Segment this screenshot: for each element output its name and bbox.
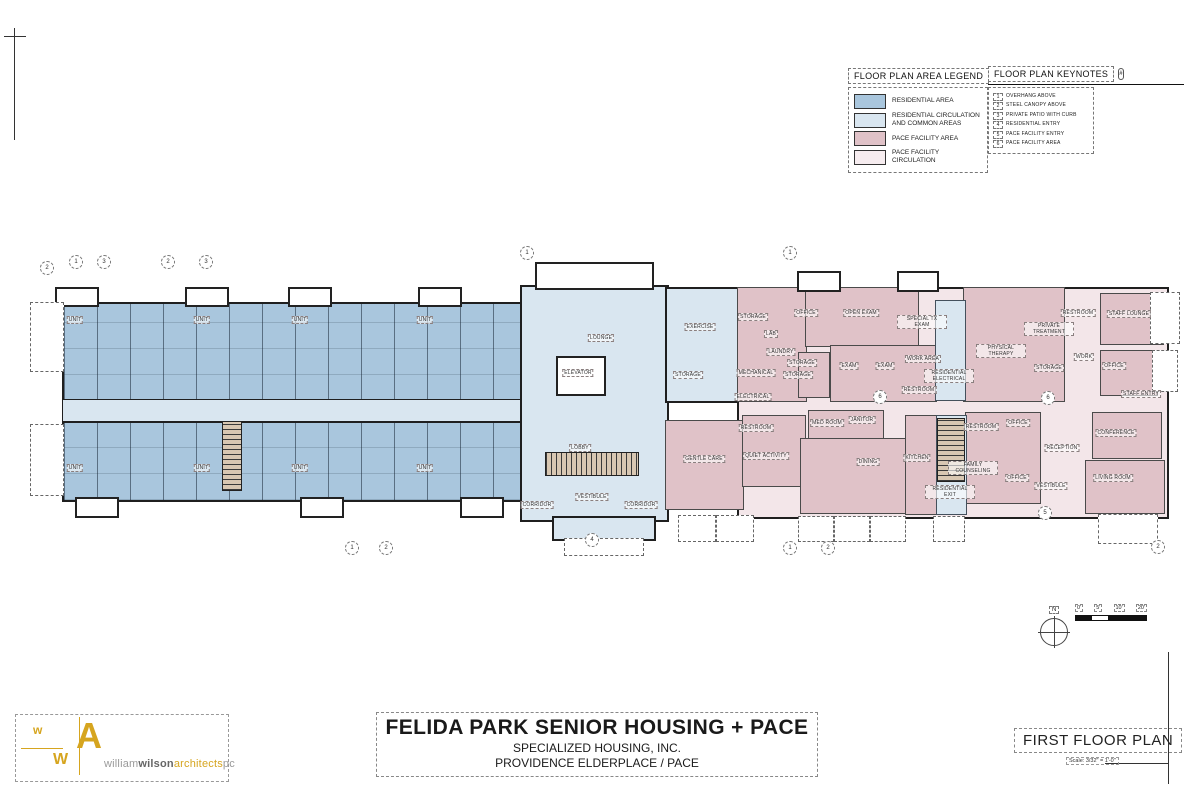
title-block: FELIDA PARK SENIOR HOUSING + PACE SPECIA… (376, 712, 818, 777)
room-label: UNIT (417, 316, 433, 324)
room-label: KITCHEN (903, 454, 930, 462)
keynote-marker: 6 (1041, 391, 1055, 405)
room-label: LOUNGE (588, 334, 614, 342)
room-label: UNIT (194, 316, 210, 324)
keynote-marker: 5 (1038, 506, 1052, 520)
north-label: N (1049, 606, 1059, 614)
room-label: FAMILY COUNSELING (948, 461, 998, 475)
room-label: PRIVATE TREATMENT (1024, 322, 1074, 336)
logo-word-pc: pc (223, 758, 235, 770)
graphic-scale: 0'5'10'20' (1075, 604, 1147, 621)
room-label: CONFERENCE (1095, 429, 1136, 437)
room-label: EXAM (840, 362, 859, 370)
keynote-marker: 1 (783, 541, 797, 555)
room-label: VESTIBULE (1034, 482, 1067, 490)
scalebar-tick: 10' (1114, 604, 1125, 612)
room-label: UNIT (292, 316, 308, 324)
room-label: SPECIAL TX EXAM (897, 315, 947, 329)
scalebar-labels: 0'5'10'20' (1075, 604, 1147, 612)
scalebar-tick: 20' (1136, 604, 1147, 612)
room-label: EXERCISE (685, 323, 716, 331)
scalebar-segment (1076, 616, 1092, 620)
sheet-title: FIRST FLOOR PLAN (1014, 728, 1182, 753)
room-label: UNIT (292, 464, 308, 472)
logo-word-william: william (104, 758, 138, 770)
room-label: STORAGE (783, 371, 813, 379)
keynote-marker: 2 (1151, 540, 1165, 554)
room-label: LAB (764, 330, 778, 338)
floor-plan: LOUNGEELEVATORLOBBYVESTIBULECORRIDORCORR… (0, 0, 1187, 794)
logo-wordmark: williamwilsonarchitectspc (104, 758, 235, 770)
project-subtitle: PROVIDENCE ELDERPLACE / PACE (377, 756, 817, 770)
room-label: MED ROOM (810, 419, 844, 427)
room-label: WORK (1074, 353, 1094, 361)
logo-grid-line (21, 748, 63, 749)
scalebar-tick: 0' (1075, 604, 1083, 612)
scalebar-segment (1092, 616, 1108, 620)
keynote-marker: 3 (97, 255, 111, 269)
keynote-marker: 1 (783, 246, 797, 260)
room-label: ELECTRICAL (735, 393, 772, 401)
room-label: MECHANICAL (737, 369, 776, 377)
keynote-marker: 6 (873, 390, 887, 404)
room-label: GENTLE CARE (683, 455, 725, 463)
scalebar-bar (1075, 615, 1147, 621)
keynote-marker: 2 (40, 261, 54, 275)
keynote-marker: 2 (161, 255, 175, 269)
room-label: OPEN EXAM (843, 309, 879, 317)
room-label: PHYSICAL THERAPY (976, 344, 1026, 358)
room-label: STORAGE (738, 313, 768, 321)
logo-word-wilson: wilson (138, 758, 173, 770)
room-label: STORAGE (673, 371, 703, 379)
room-label: LAUNDRY (766, 348, 795, 356)
room-label: STAFF ENTRY (1121, 390, 1161, 398)
room-label: RESIDENTIAL EXIT (925, 485, 975, 499)
room-label: OFFICE (1102, 362, 1126, 370)
room-label: CORRIDOR (521, 501, 554, 509)
room-label: UNIT (194, 464, 210, 472)
room-label: DINING (857, 458, 880, 466)
room-label: UNIT (67, 316, 83, 324)
keynote-marker: 1 (69, 255, 83, 269)
keynote-marker: 2 (379, 541, 393, 555)
room-label: OFFICE (1005, 474, 1029, 482)
north-arrow: N (1040, 598, 1068, 646)
room-label: LOBBY (569, 444, 591, 452)
scalebar-tick: 5' (1094, 604, 1102, 612)
room-label: UNIT (417, 464, 433, 472)
room-label: OFFICE (794, 309, 818, 317)
room-label: QUIET ACTIVITY (743, 452, 789, 460)
room-label: STORAGE (1034, 364, 1064, 372)
logo-mark-w-large: W (53, 751, 68, 769)
room-label: RESTROOM (1061, 309, 1096, 317)
architect-logo: w A W williamwilsonarchitectspc (15, 714, 229, 782)
room-label: VESTIBULE (575, 493, 608, 501)
room-label: STAFF LOUNGE (1107, 310, 1151, 318)
room-label: RESTROOM (902, 386, 937, 394)
scalebar-segment (1108, 616, 1146, 620)
room-label: WORK AREA (905, 355, 941, 363)
keynote-marker: 1 (520, 246, 534, 260)
room-label: OFFICE (1006, 419, 1030, 427)
keynote-marker: 2 (821, 541, 835, 555)
north-arrow-icon (1040, 618, 1068, 646)
room-label: RECEPTION (1045, 444, 1080, 452)
logo-mark-w-small: w (33, 723, 42, 737)
room-label: LIVING ROOM (1093, 474, 1133, 482)
keynote-marker: 1 (345, 541, 359, 555)
room-label: STORAGE (787, 359, 817, 367)
logo-mark-a: A (76, 715, 102, 757)
keynote-marker: 4 (585, 533, 599, 547)
room-label: ELEVATOR (562, 369, 593, 377)
keynote-marker: 3 (199, 255, 213, 269)
room-label-layer: LOUNGEELEVATORLOBBYVESTIBULECORRIDORCORR… (0, 0, 1187, 794)
sheet-name-block: FIRST FLOOR PLAN (1014, 728, 1182, 753)
room-label: CORRIDOR (625, 501, 658, 509)
logo-word-architects: architects (174, 758, 223, 770)
room-label: RESIDENTIAL ELECTRICAL (924, 369, 974, 383)
room-label: RESTROOM (964, 423, 999, 431)
room-label: UNIT (67, 464, 83, 472)
room-label: EXAM (876, 362, 895, 370)
client-name: SPECIALIZED HOUSING, INC. (377, 741, 817, 755)
sheet-scale: Scale: 3/32" = 1'-0" (1066, 757, 1119, 765)
room-label: RESTROOM (739, 424, 774, 432)
room-label: JANITOR (849, 416, 876, 424)
project-title: FELIDA PARK SENIOR HOUSING + PACE (377, 716, 817, 740)
north-arrow-line (1038, 632, 1070, 633)
